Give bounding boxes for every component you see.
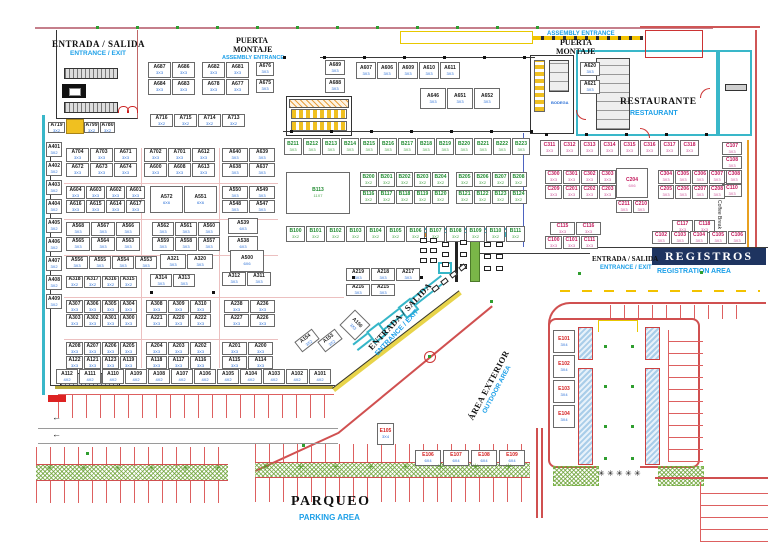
- green-dot-icon: [456, 26, 459, 29]
- pillar-icon: [283, 56, 286, 59]
- table-icon: [460, 252, 467, 257]
- pillar-icon: [212, 291, 215, 294]
- green-dot-icon: [176, 26, 179, 29]
- green-dot-icon: [631, 385, 634, 388]
- green-dot-icon: [86, 452, 89, 455]
- pillar-icon: [420, 276, 423, 279]
- tree-icon: ✳: [402, 463, 410, 472]
- pillar-icon: [323, 56, 326, 59]
- pillar-icon: [150, 291, 153, 294]
- pillar-icon: [545, 133, 548, 136]
- green-dot-icon: [496, 26, 499, 29]
- pillar-icon: [370, 130, 373, 133]
- pillar-icon: [352, 276, 355, 279]
- green-dot-icon: [604, 457, 607, 460]
- green-dot-icon: [296, 26, 299, 29]
- table-icon: [496, 242, 503, 247]
- decor-layer: ✳✳✳✳✳✳✳✳✳✳✳✳✳✳✳✳✳✳✳: [0, 0, 768, 543]
- table-icon: [430, 238, 437, 243]
- tree-icon: ✳: [182, 464, 190, 473]
- green-dot-icon: [416, 26, 419, 29]
- pillar-icon: [330, 130, 333, 133]
- pillar-icon: [665, 133, 668, 136]
- table-icon: [431, 284, 440, 292]
- tree-icon: ✳: [437, 463, 445, 472]
- pillar-icon: [483, 56, 486, 59]
- green-dot-icon: [376, 26, 379, 29]
- pillar-icon: [585, 133, 588, 136]
- table-icon: [442, 252, 449, 257]
- table-icon: [496, 254, 503, 259]
- tree-icon: ✳: [472, 463, 480, 472]
- green-dot-icon: [490, 300, 493, 303]
- green-dot-icon: [604, 425, 607, 428]
- tree-icon: ✳: [262, 463, 270, 472]
- outdoor-tree-icon: ✳: [598, 470, 605, 478]
- table-icon: [442, 242, 449, 247]
- table-icon: [460, 240, 467, 245]
- pillar-icon: [490, 130, 493, 133]
- tree-icon: ✳: [148, 464, 156, 473]
- tree-icon: ✳: [332, 463, 340, 472]
- green-dot-icon: [631, 457, 634, 460]
- green-dot-icon: [604, 385, 607, 388]
- tree-icon: ✳: [505, 463, 513, 472]
- floor-plan: BODEGA ← ←: [0, 0, 768, 543]
- tree-icon: ✳: [367, 463, 375, 472]
- pillar-icon: [625, 133, 628, 136]
- tree-icon: ✳: [114, 464, 122, 473]
- pillar-icon: [403, 56, 406, 59]
- green-dot-icon: [578, 272, 581, 275]
- green-dot-icon: [302, 444, 305, 447]
- table-icon: [430, 248, 437, 253]
- table-icon: [449, 270, 458, 278]
- table-icon: [484, 266, 491, 271]
- tree-icon: ✳: [80, 464, 88, 473]
- table-icon: [442, 262, 449, 267]
- outdoor-tree-icon: ✳: [616, 470, 623, 478]
- table-icon: [420, 248, 427, 253]
- green-dot-icon: [700, 271, 703, 274]
- green-dot-icon: [604, 345, 607, 348]
- table-icon: [420, 238, 427, 243]
- pillar-icon: [450, 130, 453, 133]
- table-icon: [484, 242, 491, 247]
- green-dot-icon: [631, 425, 634, 428]
- pillar-icon: [523, 56, 526, 59]
- table-icon: [496, 266, 503, 271]
- tree-icon: ✳: [214, 464, 222, 473]
- outdoor-tree-icon: ✳: [634, 470, 641, 478]
- tree-icon: ✳: [46, 464, 54, 473]
- pillar-icon: [530, 130, 533, 133]
- table-icon: [430, 258, 437, 263]
- table-icon: [440, 277, 449, 285]
- pillar-icon: [443, 56, 446, 59]
- tree-icon: ✳: [297, 463, 305, 472]
- pillar-icon: [290, 130, 293, 133]
- green-dot-icon: [536, 26, 539, 29]
- green-dot-icon: [336, 26, 339, 29]
- outdoor-tree-icon: ✳: [607, 470, 614, 478]
- outdoor-tree-icon: ✳: [625, 470, 632, 478]
- green-dot-icon: [631, 345, 634, 348]
- green-dot-icon: [96, 26, 99, 29]
- table-icon: [484, 254, 491, 259]
- green-dot-icon: [216, 26, 219, 29]
- green-dot-icon: [136, 26, 139, 29]
- pillar-icon: [363, 56, 366, 59]
- green-dot-icon: [256, 26, 259, 29]
- table-icon: [420, 258, 427, 263]
- pillar-icon: [705, 133, 708, 136]
- pillar-icon: [410, 130, 413, 133]
